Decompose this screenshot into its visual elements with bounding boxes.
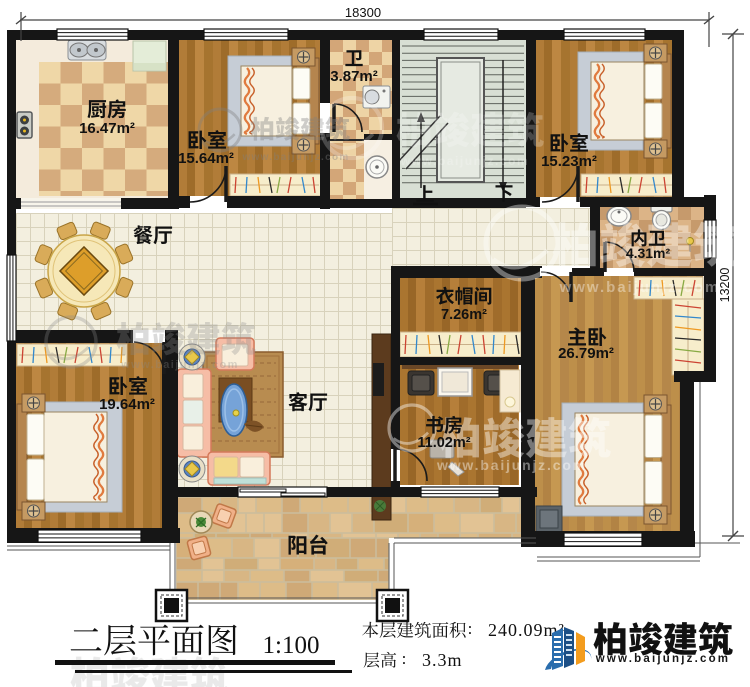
svg-text:7.26m²: 7.26m² [441,307,487,323]
svg-text::: : [402,649,407,668]
svg-text:www.baijunjz.com: www.baijunjz.com [436,457,587,473]
svg-text:19.64m²: 19.64m² [99,396,155,413]
svg-text:www.baijunjz.com: www.baijunjz.com [400,154,530,168]
svg-text:3.3m: 3.3m [422,650,463,670]
svg-text:1:100: 1:100 [263,632,320,659]
svg-text:18300: 18300 [345,5,381,20]
svg-text:11.02m²: 11.02m² [417,435,470,451]
svg-text:3.87m²: 3.87m² [330,68,378,85]
svg-text:16.47m²: 16.47m² [79,120,135,137]
svg-text:15.64m²: 15.64m² [178,150,234,167]
svg-text:4.31m²: 4.31m² [626,245,671,261]
svg-text:www.baijunjz.com: www.baijunjz.com [120,359,239,371]
svg-text:26.79m²: 26.79m² [558,345,614,362]
svg-text:www.baijunjz.com: www.baijunjz.com [595,653,730,665]
svg-text::: : [468,619,473,638]
svg-text:www.baijunjz.com: www.baijunjz.com [559,279,721,296]
svg-text:15.23m²: 15.23m² [541,153,597,170]
